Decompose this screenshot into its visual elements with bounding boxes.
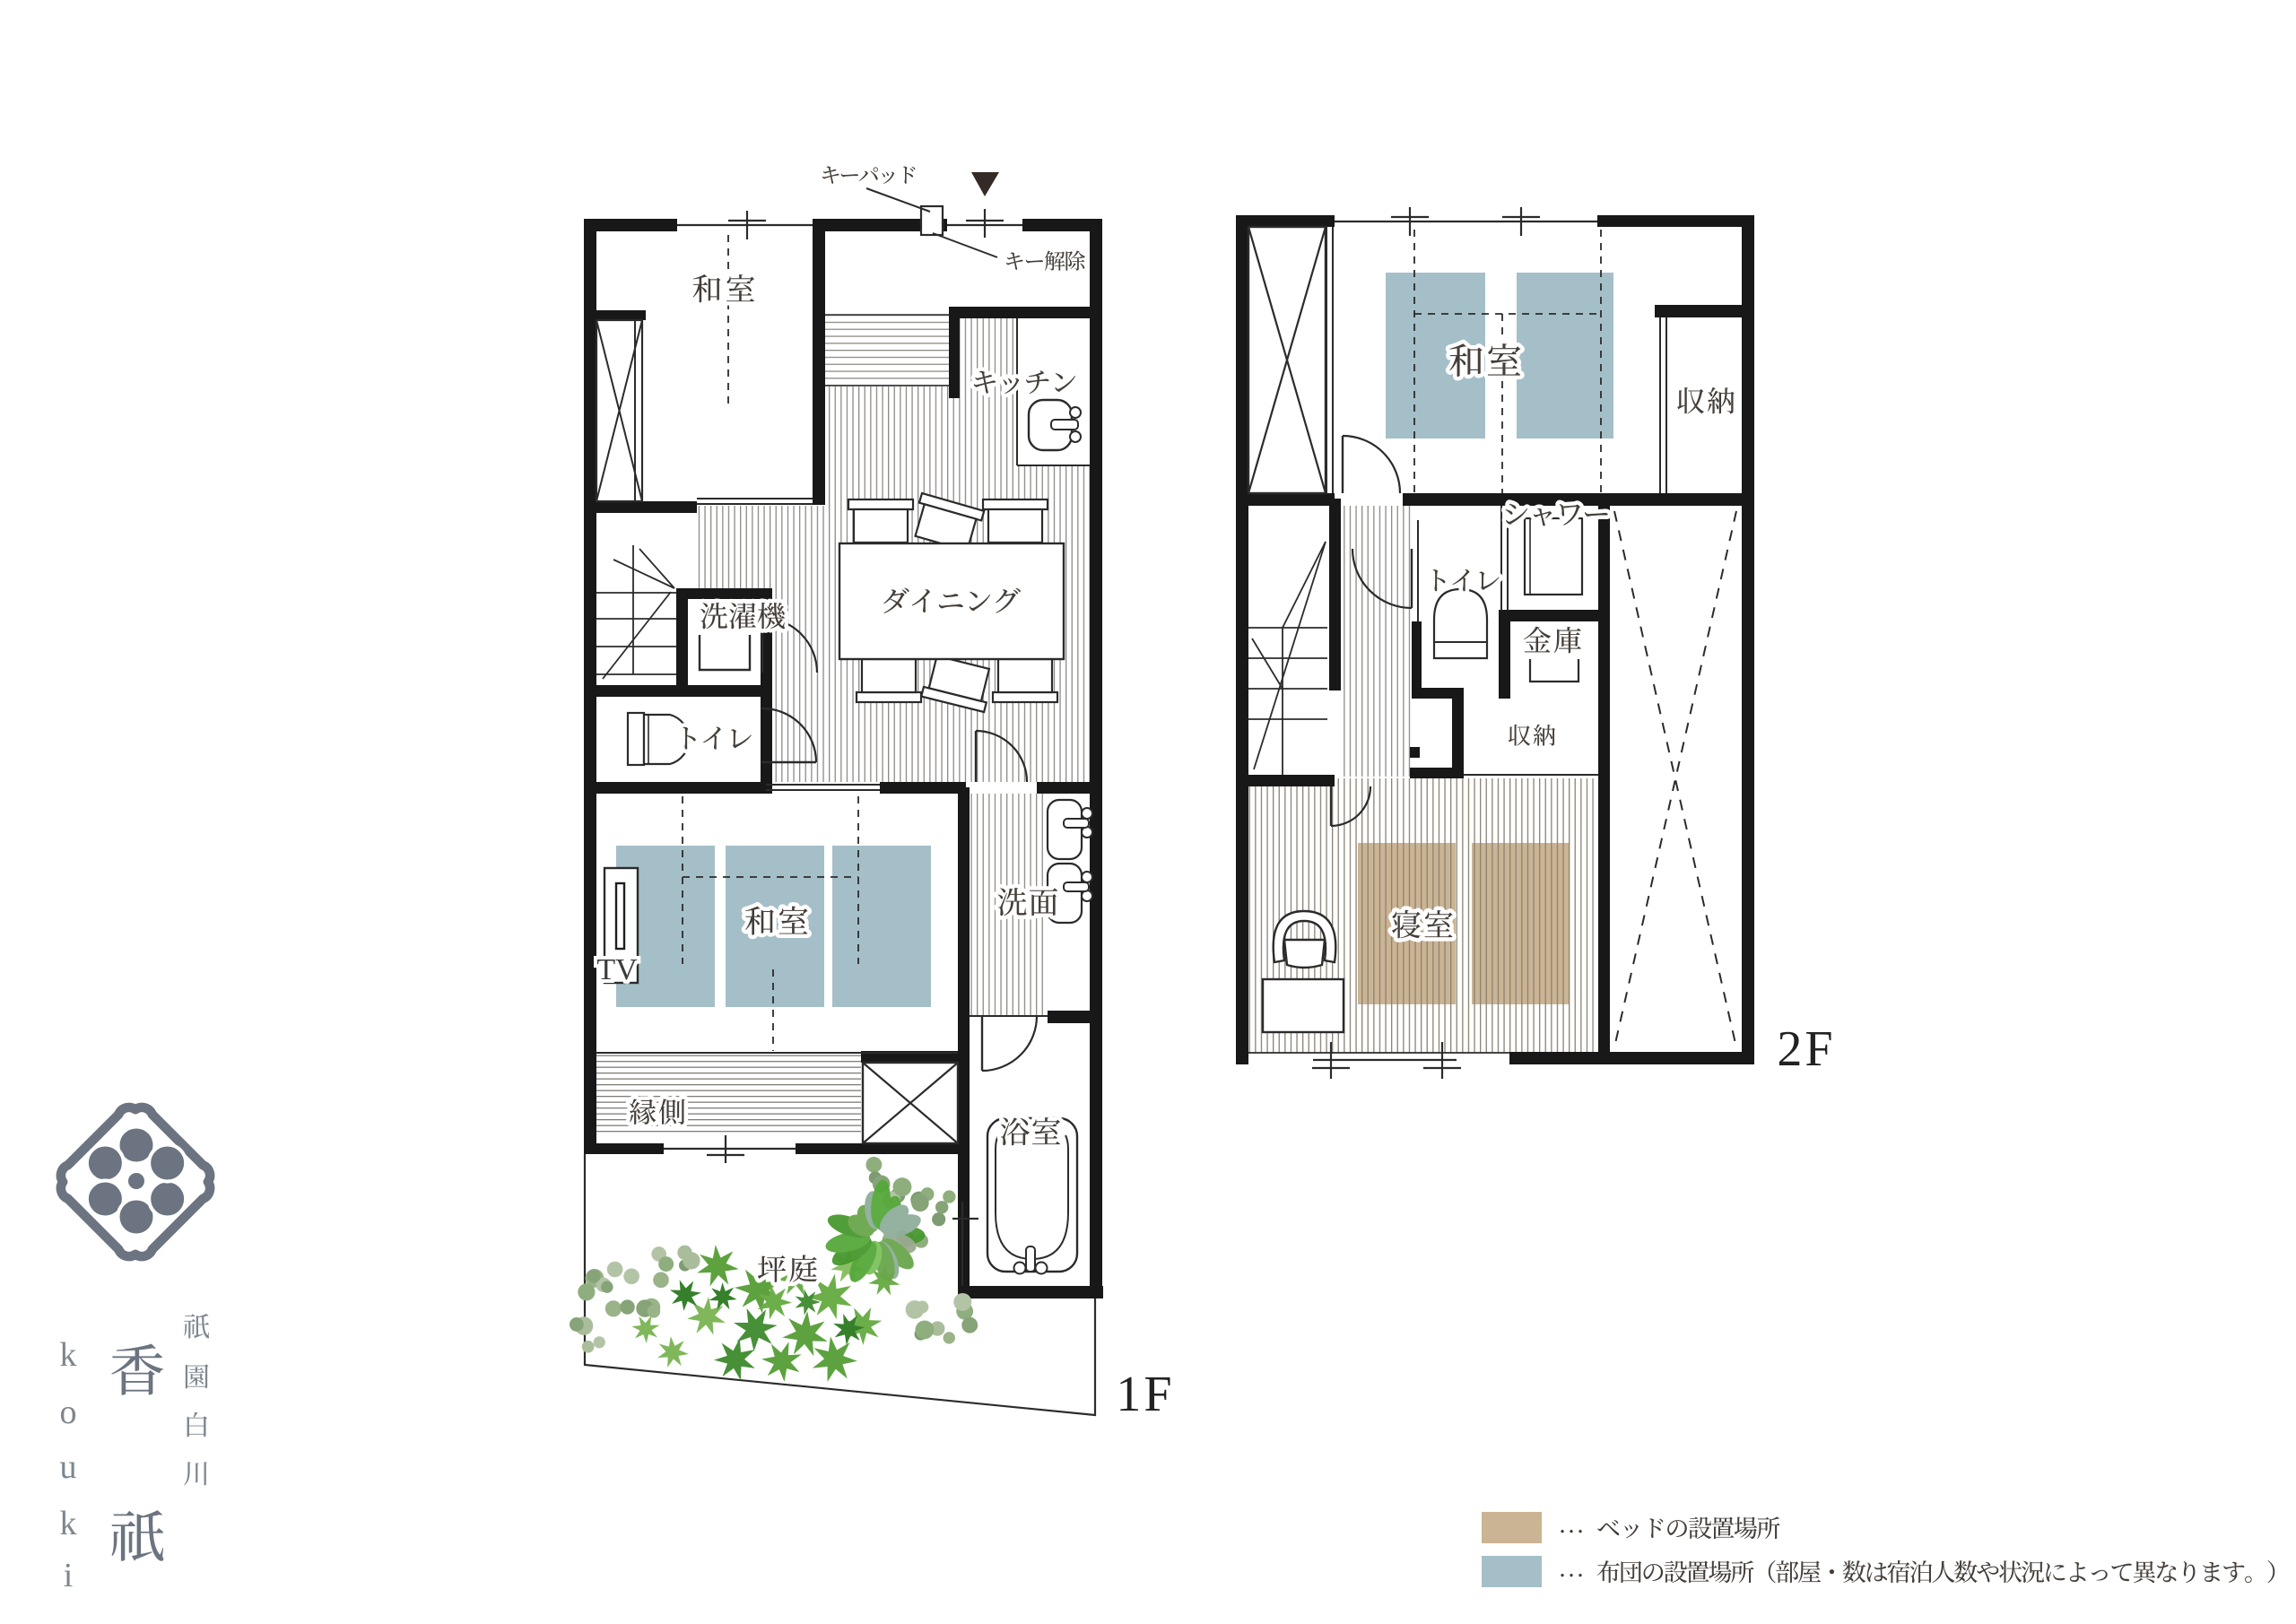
svg-text:2F: 2F <box>1777 1021 1835 1077</box>
svg-text:u: u <box>60 1448 77 1486</box>
svg-text:k: k <box>60 1336 77 1374</box>
svg-text:1F: 1F <box>1116 1367 1174 1422</box>
svg-text:o: o <box>60 1394 77 1431</box>
svg-text:k: k <box>60 1505 77 1542</box>
svg-text:TV: TV <box>596 953 638 986</box>
svg-text:i: i <box>64 1557 74 1594</box>
